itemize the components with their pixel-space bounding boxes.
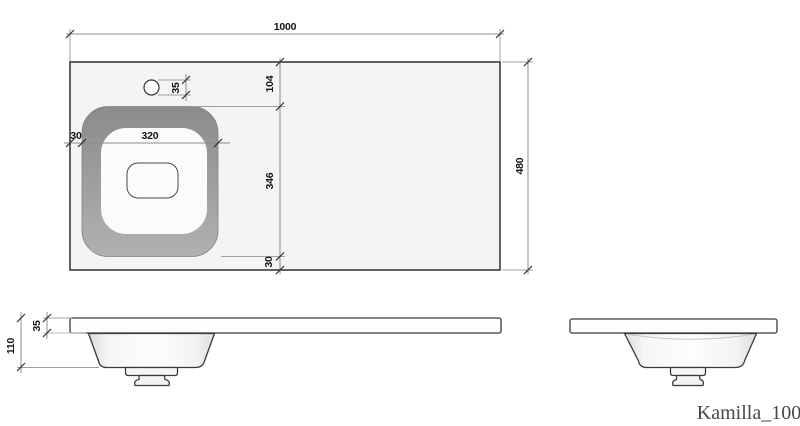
dim-overall-width-label: 1000 xyxy=(274,21,297,33)
drain-outline-top xyxy=(127,163,178,198)
side-countertop-slab xyxy=(570,319,777,333)
front-bowl-profile xyxy=(89,334,215,368)
front-view xyxy=(70,318,501,386)
dim-overall-depth-label: 480 xyxy=(514,157,526,174)
product-name-label: Kamilla_100 xyxy=(697,402,800,424)
dim-basin-top-offset-label: 104 xyxy=(264,75,276,92)
dim-slab-thickness-label: 35 xyxy=(31,320,43,332)
front-countertop-slab xyxy=(70,318,501,333)
side-drain-fitting xyxy=(673,376,704,386)
faucet-hole xyxy=(144,80,159,95)
dim-overall-height-label: 110 xyxy=(5,337,17,354)
front-drain-fitting xyxy=(135,376,170,386)
side-bowl-profile xyxy=(625,334,757,368)
dim-basin-left-offset-label: 30 xyxy=(70,130,82,142)
dim-basin-bottom-offset-label: 30 xyxy=(263,256,275,268)
top-view xyxy=(70,62,500,270)
dim-overall-width: 1000 xyxy=(66,21,504,61)
dim-overall-depth: 480 xyxy=(502,58,533,274)
dim-basin-depth-label: 346 xyxy=(264,172,276,189)
dim-faucet-hole-label: 35 xyxy=(170,82,182,94)
side-drain-step xyxy=(671,368,706,376)
drawing-svg: 1000 480 35 104 346 30 30 3 xyxy=(0,0,800,426)
dim-basin-width-label: 320 xyxy=(142,130,159,142)
side-view xyxy=(570,319,777,386)
front-drain-step xyxy=(126,368,178,376)
technical-drawing-sheet: 1000 480 35 104 346 30 30 3 xyxy=(0,0,800,426)
